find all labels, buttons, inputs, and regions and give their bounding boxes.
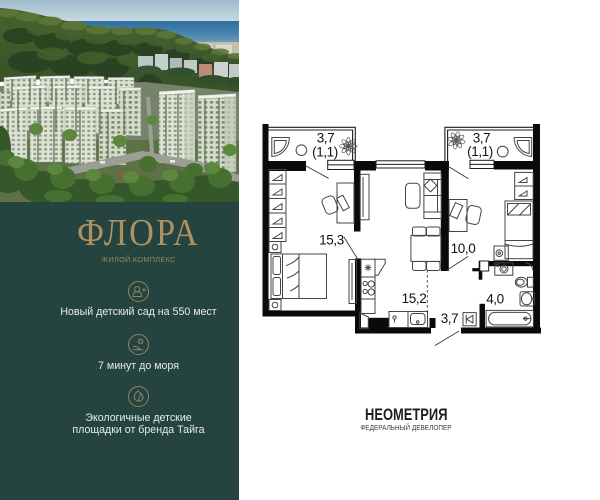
svg-text:(1,1): (1,1) [312, 145, 338, 160]
svg-text:10,0: 10,0 [451, 241, 476, 256]
svg-text:4,0: 4,0 [486, 292, 504, 307]
svg-text:15,2: 15,2 [402, 291, 427, 306]
svg-text:15,3: 15,3 [319, 233, 344, 248]
svg-text:(1,1): (1,1) [467, 144, 493, 159]
svg-text:3,7: 3,7 [441, 311, 459, 326]
svg-text:3,7: 3,7 [317, 130, 335, 145]
